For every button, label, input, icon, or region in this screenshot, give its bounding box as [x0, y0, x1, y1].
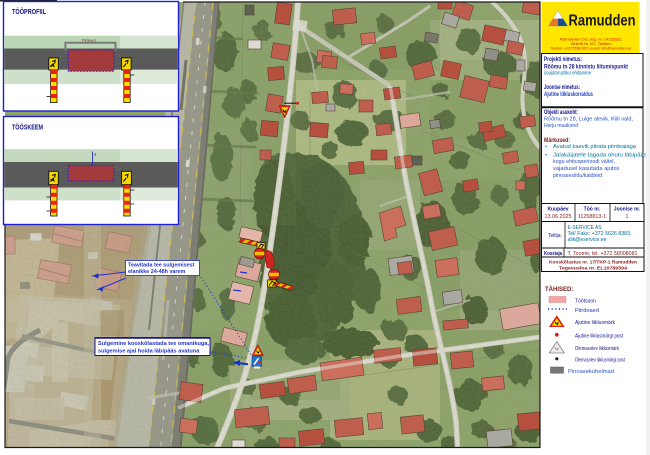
svg-text:Piirdeaed: Piirdeaed: [575, 308, 599, 314]
svg-text:Kooskõlastus nr. 17/TKP-1 Ram: Kooskõlastus nr. 17/TKP-1 Ramudden: [549, 259, 637, 265]
svg-text:T. Toome, tel. +372 58008081: T. Toome, tel. +372 58008081: [568, 251, 638, 257]
svg-text:alik@eservice.ee: alik@eservice.ee: [568, 237, 607, 243]
svg-text:Ramudden: Ramudden: [569, 13, 636, 30]
svg-text:Olemasolev liiklusmärk: Olemasolev liiklusmärk: [575, 346, 619, 352]
svg-text:Joonise nimetus:: Joonise nimetus:: [544, 85, 580, 91]
svg-text:•: •: [545, 144, 547, 150]
svg-text:Märkused:: Märkused:: [544, 138, 570, 144]
svg-text:1: 1: [626, 214, 629, 220]
svg-text:Projekti nimetus:: Projekti nimetus:: [544, 57, 582, 63]
svg-text:soojatorustiku ehitamine: soojatorustiku ehitamine: [544, 71, 591, 77]
svg-text:Avatud kaevik piirata piirdeai: Avatud kaevik piirata piirdeaiaga: [553, 144, 637, 150]
svg-text:Ajutine liikluskorraldus: Ajutine liikluskorraldus: [544, 92, 593, 98]
svg-text:Pinnasekuhelmad: Pinnasekuhelmad: [568, 369, 614, 375]
svg-text:•: •: [545, 152, 547, 158]
svg-text:Teavitada tee sulgemisest: Teavitada tee sulgemisest: [128, 263, 195, 269]
svg-text:Rõõmu tn 28 kinnistu liitumisp: Rõõmu tn 28 kinnistu liitumispunkt: [544, 64, 628, 70]
svg-text:Rõõmu tn 28, Luige alevik, Kii: Rõõmu tn 28, Luige alevik, Kiili vald,: [544, 116, 633, 122]
svg-text:Joonise nr.: Joonise nr.: [614, 207, 641, 213]
svg-text:Töötsoon: Töötsoon: [575, 299, 596, 305]
svg-text:Töö nr.: Töö nr.: [584, 207, 601, 213]
svg-text:Ajutine liiklusmärk: Ajutine liiklusmärk: [575, 320, 615, 326]
svg-text:kogu ehitusperioodi vältel,: kogu ehitusperioodi vältel,: [553, 159, 615, 165]
svg-text:Jalakäijatele tagada ohutu läb: Jalakäijatele tagada ohutu läbipääs: [553, 152, 647, 158]
svg-text:Tegevusloa nr. EL10789594: Tegevusloa nr. EL10789594: [559, 265, 627, 271]
svg-text:TÖÖSKEEM: TÖÖSKEEM: [12, 123, 43, 132]
svg-text:sulgemise ajal hoida läbipääs: sulgemise ajal hoida läbipääs avatuna: [98, 349, 200, 355]
svg-text:13.06.2025: 13.06.2025: [545, 214, 572, 220]
svg-text:11258813-1: 11258813-1: [578, 214, 606, 220]
svg-text:Tellija:: Tellija:: [548, 233, 562, 239]
svg-text:elanikke 24-48h varem: elanikke 24-48h varem: [128, 269, 185, 275]
svg-text:TÄHISED:: TÄHISED:: [545, 286, 573, 293]
svg-text:Olemasolev liiklusmärgi post: Olemasolev liiklusmärgi post: [575, 357, 625, 363]
svg-text:Piirdeaed: Piirdeaed: [82, 39, 96, 43]
svg-text:Objekti asukoht:: Objekti asukoht:: [544, 110, 578, 116]
svg-text:Kuupäev: Kuupäev: [547, 207, 568, 213]
svg-text:vajadusel kasutada ajutisi: vajadusel kasutada ajutisi: [553, 166, 619, 172]
svg-text:Ajutine liiklusmärgi post: Ajutine liiklusmärgi post: [575, 333, 623, 339]
svg-text:Sulgemine kooskõlastada tee om: Sulgemine kooskõlastada tee omanikuga,: [98, 341, 209, 347]
svg-text:TÖÖPROFIIL: TÖÖPROFIIL: [12, 7, 47, 16]
svg-text:Telefon: +372 5556 0621 e-pos: Telefon: +372 5556 0621 e-post: info@ram…: [551, 46, 633, 51]
svg-text:pinnasesildu/kaldteid: pinnasesildu/kaldteid: [553, 173, 602, 179]
svg-text:Harju maakond: Harju maakond: [544, 123, 578, 129]
svg-text:Koostaja: Koostaja: [544, 251, 563, 257]
